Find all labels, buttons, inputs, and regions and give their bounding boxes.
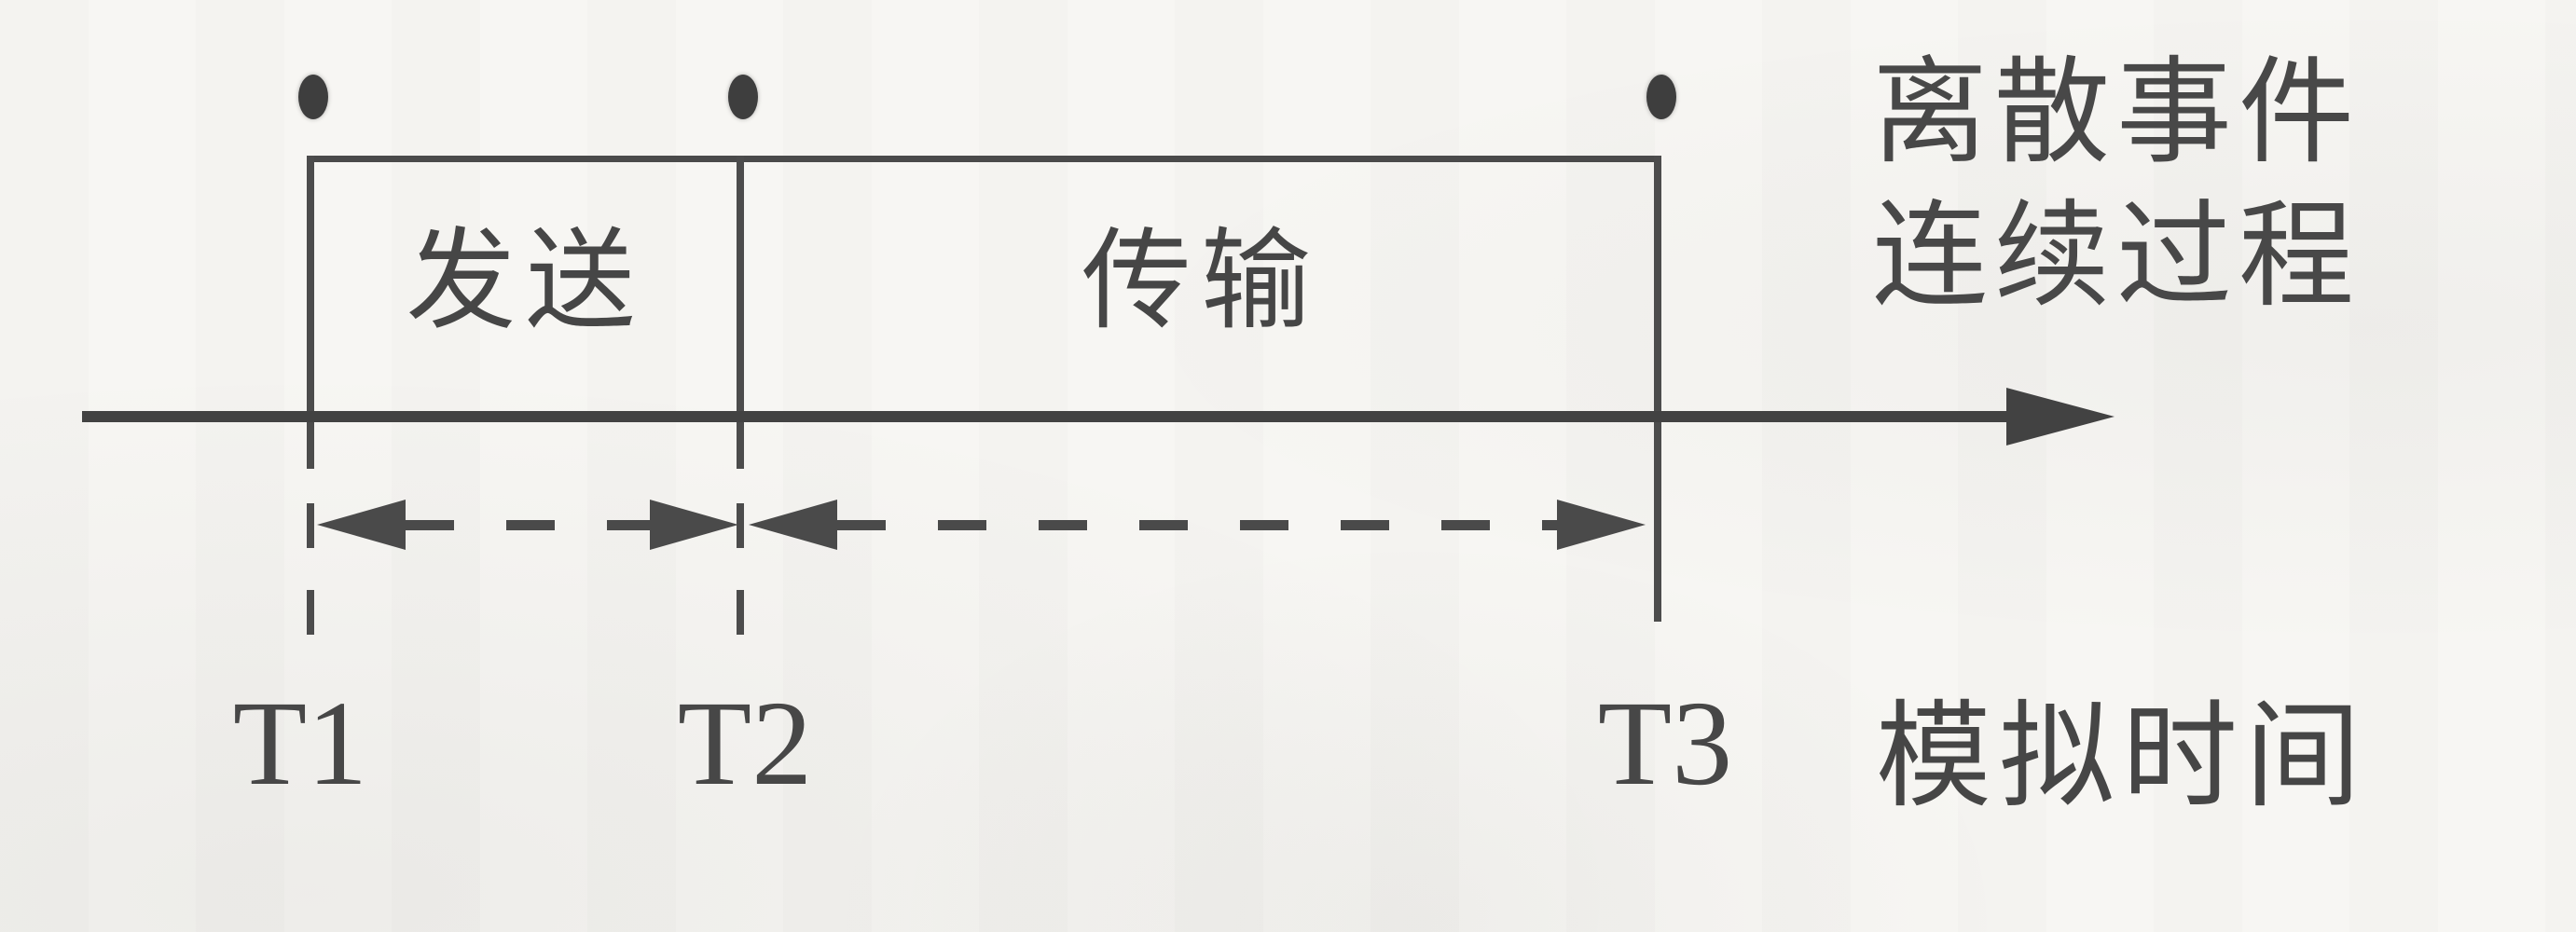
interval-arrow-t2-t3 [749,500,1646,550]
legend-line-discrete-events: 离散事件 [1872,41,2361,185]
phase-label-send: 发送 [310,220,740,343]
process-box-top-edge [310,156,1661,162]
time-label-t2: T2 [642,692,847,796]
figure-canvas: 发送 传输 T1 T2 T3 离散事件 连续过程 模拟时间 [0,0,2576,932]
legend-line-continuous-process: 连续过程 [1872,185,2361,328]
legend-text: 离散事件 连续过程 [1872,41,2361,328]
right-arrowhead [650,500,738,550]
left-arrowhead [749,500,837,550]
event-dot-t2 [728,75,758,119]
time-label-t3: T3 [1563,692,1768,796]
event-line-t1-dashed [307,503,314,643]
time-axis-arrowhead [2006,388,2115,445]
right-arrowhead [1557,500,1646,550]
interval-arrow-t1-t2 [317,500,738,550]
dashed-shaft [406,520,650,530]
event-dot-t1 [298,75,328,119]
phase-label-transmit: 传输 [740,220,1661,343]
axis-caption: 模拟时间 [1876,692,2368,822]
dashed-shaft [837,520,1557,530]
event-dot-t3 [1646,75,1676,119]
time-label-t1: T1 [198,692,403,796]
left-arrowhead [317,500,406,550]
time-axis-line [82,411,2012,422]
